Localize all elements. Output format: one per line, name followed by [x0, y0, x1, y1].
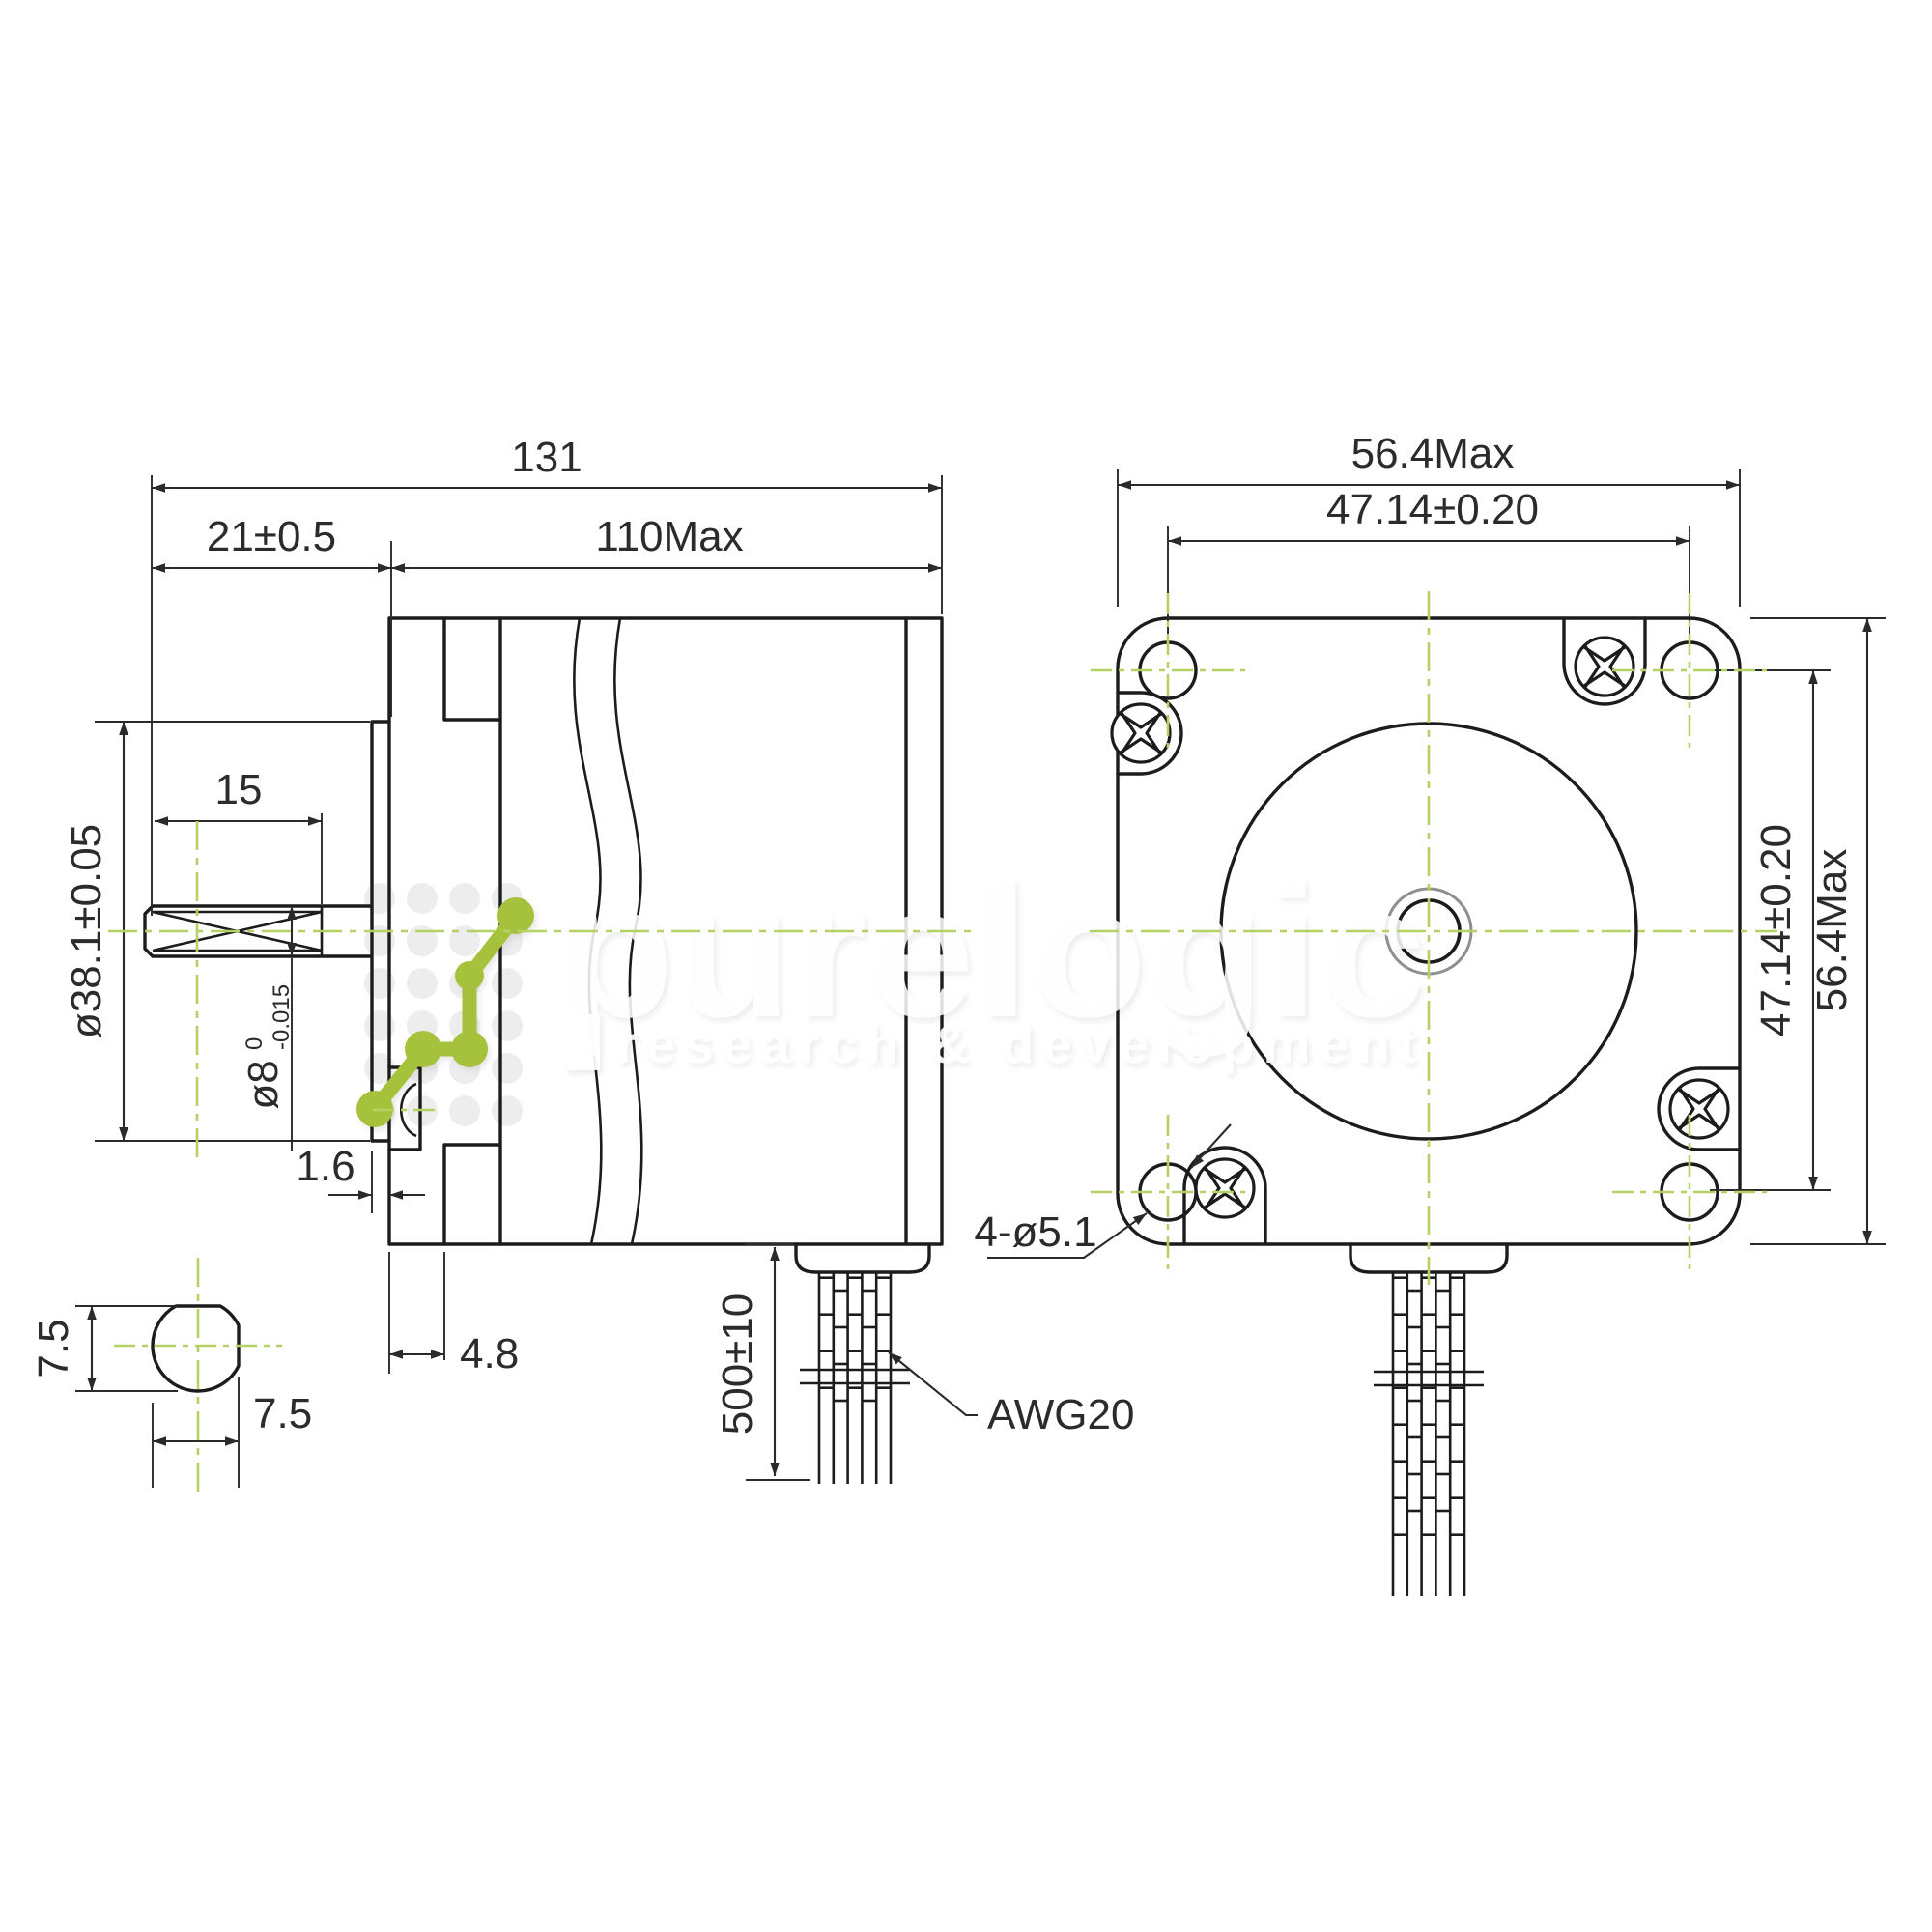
shaft-section-view: 7.5 7.5: [30, 1306, 312, 1488]
label-mounting-holes: 4-ø5.1: [974, 1208, 1096, 1256]
dim-shaft-extension: 21±0.5: [207, 513, 336, 560]
dim-front-width: 56.4Max: [1351, 430, 1515, 477]
dim-flat-length: 15: [215, 766, 263, 813]
phillips-screw-icon: [1112, 704, 1170, 762]
cable-boot: [796, 1244, 929, 1272]
dim-pilot-depth: 1.6: [296, 1143, 355, 1190]
dim-shaft-diameter: ø8: [240, 1060, 287, 1109]
cable-tie: [800, 1370, 910, 1383]
dim-pilot-diameter: ø38.1±0.05: [63, 824, 110, 1038]
phillips-screw-icon: [1576, 638, 1634, 696]
dim-shaft-tol-lower: -0.015: [269, 984, 295, 1050]
dim-front-step: 4.8: [460, 1330, 519, 1378]
cable-braid: [819, 1272, 891, 1432]
dimension-drawing: 131 21±0.5 110Max 15 ø38.1±0.05 ø8 0 -0.…: [0, 0, 1932, 1932]
phillips-screw-icon: [1196, 1159, 1254, 1217]
front-view-dimensions: 56.4Max 47.14±0.20 47.14±0.20 56.4Max 4-…: [974, 430, 1886, 1258]
dim-body-length: 110Max: [595, 513, 743, 560]
lead-wires: [819, 1432, 891, 1484]
cable-braid-front: [1393, 1272, 1464, 1543]
dim-shaft-tol-upper: 0: [241, 1037, 268, 1050]
label-wire-gauge: AWG20: [987, 1391, 1134, 1438]
phillips-screw-icon: [1670, 1080, 1728, 1138]
lead-wires-front: [1393, 1543, 1464, 1596]
cable-tie-front: [1374, 1372, 1484, 1385]
shaft-section-shape: [153, 1306, 239, 1391]
drawing-canvas: 131 21±0.5 110Max 15 ø38.1±0.05 ø8 0 -0.…: [0, 0, 1932, 1932]
dim-total-length: 131: [511, 434, 582, 481]
dim-across-flats-horizontal: 7.5: [253, 1390, 312, 1437]
dim-lead-length: 500±10: [714, 1293, 761, 1435]
watermark-tagline: research & development: [616, 1014, 1425, 1074]
watermark-tagline-block: [565, 1014, 600, 1070]
dim-front-height: 56.4Max: [1808, 849, 1856, 1012]
dim-shaft-diameter-group: ø8 0 -0.015: [240, 984, 295, 1110]
dim-across-flats-vertical: 7.5: [30, 1319, 77, 1378]
front-view: [1112, 618, 1740, 1596]
dim-hole-pitch-horizontal: 47.14±0.20: [1326, 486, 1539, 533]
